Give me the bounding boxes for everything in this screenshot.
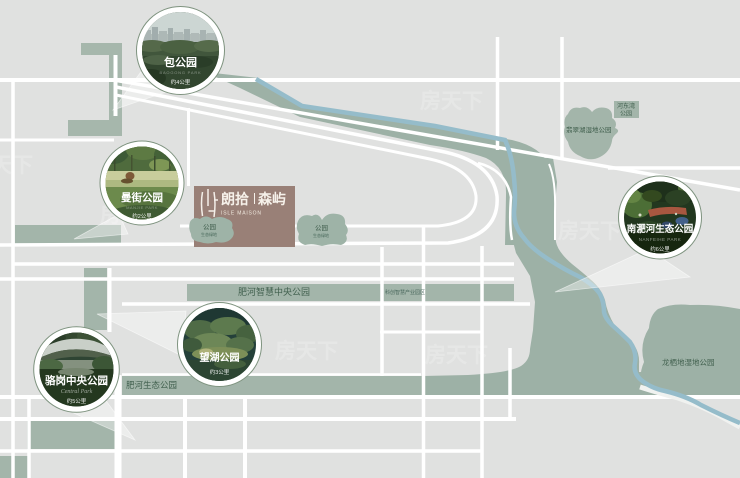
svg-text:曼街公园: 曼街公园 <box>121 191 163 204</box>
svg-text:约5公里: 约5公里 <box>67 397 87 405</box>
svg-text:Central Park: Central Park <box>61 389 93 395</box>
svg-text:NANFEIHE PARK: NANFEIHE PARK <box>639 237 681 242</box>
svg-text:望湖公园: 望湖公园 <box>200 351 240 364</box>
svg-text:肥河生态公园: 肥河生态公园 <box>126 380 177 390</box>
svg-text:房天下: 房天下 <box>420 89 483 113</box>
svg-text:森屿: 森屿 <box>258 191 286 207</box>
svg-text:翡翠湖湿地公园: 翡翠湖湿地公园 <box>566 125 612 134</box>
svg-text:ISLE MAISON: ISLE MAISON <box>221 211 262 217</box>
svg-text:房天下: 房天下 <box>0 153 33 177</box>
svg-text:朗拾: 朗拾 <box>221 191 249 207</box>
svg-text:公园: 公园 <box>315 224 328 232</box>
svg-text:约2公里: 约2公里 <box>132 212 152 220</box>
svg-text:房天下: 房天下 <box>558 219 621 243</box>
svg-text:河东湾: 河东湾 <box>617 102 635 110</box>
svg-text:南淝河生态公园: 南淝河生态公园 <box>627 223 694 235</box>
svg-text:房天下: 房天下 <box>425 343 488 367</box>
svg-text:包公园: 包公园 <box>163 55 197 69</box>
svg-text:肥河智慧中央公园: 肥河智慧中央公园 <box>238 286 310 297</box>
svg-text:公园: 公园 <box>620 111 632 118</box>
svg-text:MANJIE PARK: MANJIE PARK <box>126 205 158 210</box>
svg-text:公园: 公园 <box>203 223 216 231</box>
svg-text:骆岗中央公园: 骆岗中央公园 <box>45 374 108 387</box>
svg-text:龙栖地湿地公园: 龙栖地湿地公园 <box>662 357 715 367</box>
svg-text:生态绿地: 生态绿地 <box>313 232 329 238</box>
svg-text:约6公里: 约6公里 <box>650 245 670 253</box>
svg-text:约4公里: 约4公里 <box>171 78 191 86</box>
svg-text:房天下: 房天下 <box>275 339 338 363</box>
svg-text:生态绿地: 生态绿地 <box>201 231 217 237</box>
svg-text:约3公里: 约3公里 <box>210 368 230 376</box>
svg-text:科创智慧产业园区: 科创智慧产业园区 <box>385 289 425 296</box>
svg-text:BAOGONG PARK: BAOGONG PARK <box>160 70 202 75</box>
